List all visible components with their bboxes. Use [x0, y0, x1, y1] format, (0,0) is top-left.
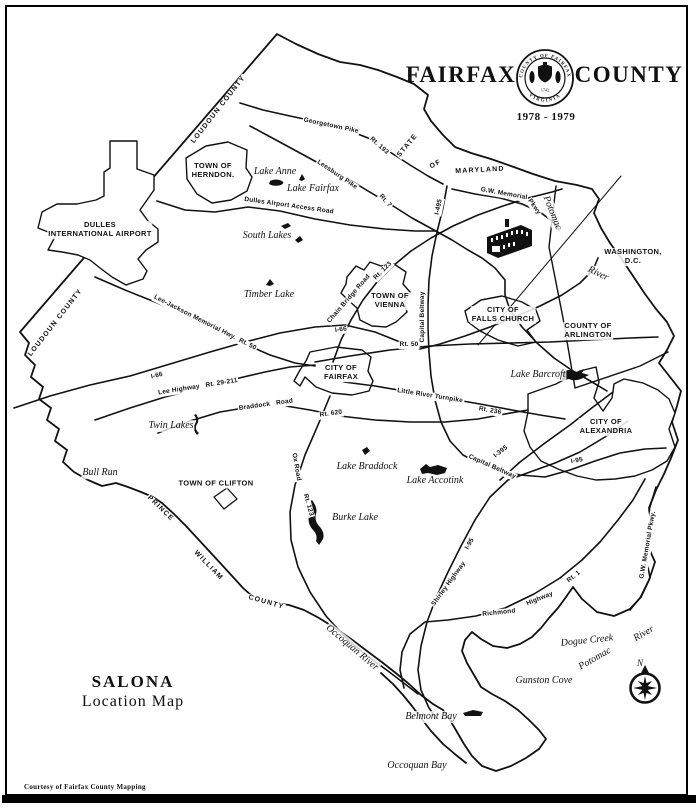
map-label: Gunston Cove — [515, 675, 574, 687]
map-label: WASHINGTON, D.C. — [600, 248, 667, 266]
map-page: N COUNTY OF FAIRFAX VIRGINIA 1742 — [0, 0, 700, 809]
map-label: TOWN OF CLIFTON — [178, 480, 255, 489]
map-label: Belmont Bay — [404, 711, 457, 723]
dulles-airport-boundary — [38, 141, 158, 285]
map-label: South Lakes — [242, 230, 293, 242]
map-name-subtitle: Location Map — [82, 693, 184, 711]
title-fairfax: FAIRFAX — [406, 62, 517, 88]
map-label: Lake Fairfax — [286, 183, 340, 195]
map-label: TOWN OF HERNDON. — [191, 162, 236, 180]
map-label: DULLES INTERNATIONAL AIRPORT — [47, 221, 152, 239]
map-label: Lake Anne — [253, 166, 297, 178]
map-label: Rt. 50 — [399, 341, 420, 349]
map-label: CITY OF ALEXANDRIA — [579, 418, 634, 436]
map-label: COUNTY OF ARLINGTON — [563, 322, 613, 340]
bottom-rule — [2, 795, 696, 803]
compass-north-label: N — [636, 658, 644, 668]
map-label: Timber Lake — [243, 289, 295, 301]
county-seal-icon: COUNTY OF FAIRFAX VIRGINIA 1742 — [517, 50, 573, 106]
map-label: Capital Beltway — [419, 290, 427, 343]
seal-year: 1742 — [541, 88, 549, 93]
map-label: Lake Barcroft — [509, 369, 566, 381]
map-label: Lake Braddock — [336, 461, 399, 473]
title-county: COUNTY — [575, 62, 684, 88]
map-label: Twin L​akes — [147, 420, 194, 432]
title-years: 1978 - 1979 — [517, 111, 576, 123]
map-label: CITY OF FAIRFAX — [323, 364, 359, 382]
map-label: Bull Run — [81, 467, 118, 479]
map-label: Occoquan Bay — [386, 760, 447, 772]
credit-line: Courtesy of Fairfax County Mapping — [24, 783, 146, 791]
compass-rose-icon: N — [631, 658, 660, 703]
map-label: TOWN OF VIENNA — [370, 292, 410, 310]
map-label: CITY OF FALLS CHURCH — [471, 306, 536, 324]
map-label: Burke Lake — [331, 512, 379, 524]
map-label: Lake Accotink — [406, 475, 465, 487]
map-name-salona: SALONA — [92, 672, 175, 692]
